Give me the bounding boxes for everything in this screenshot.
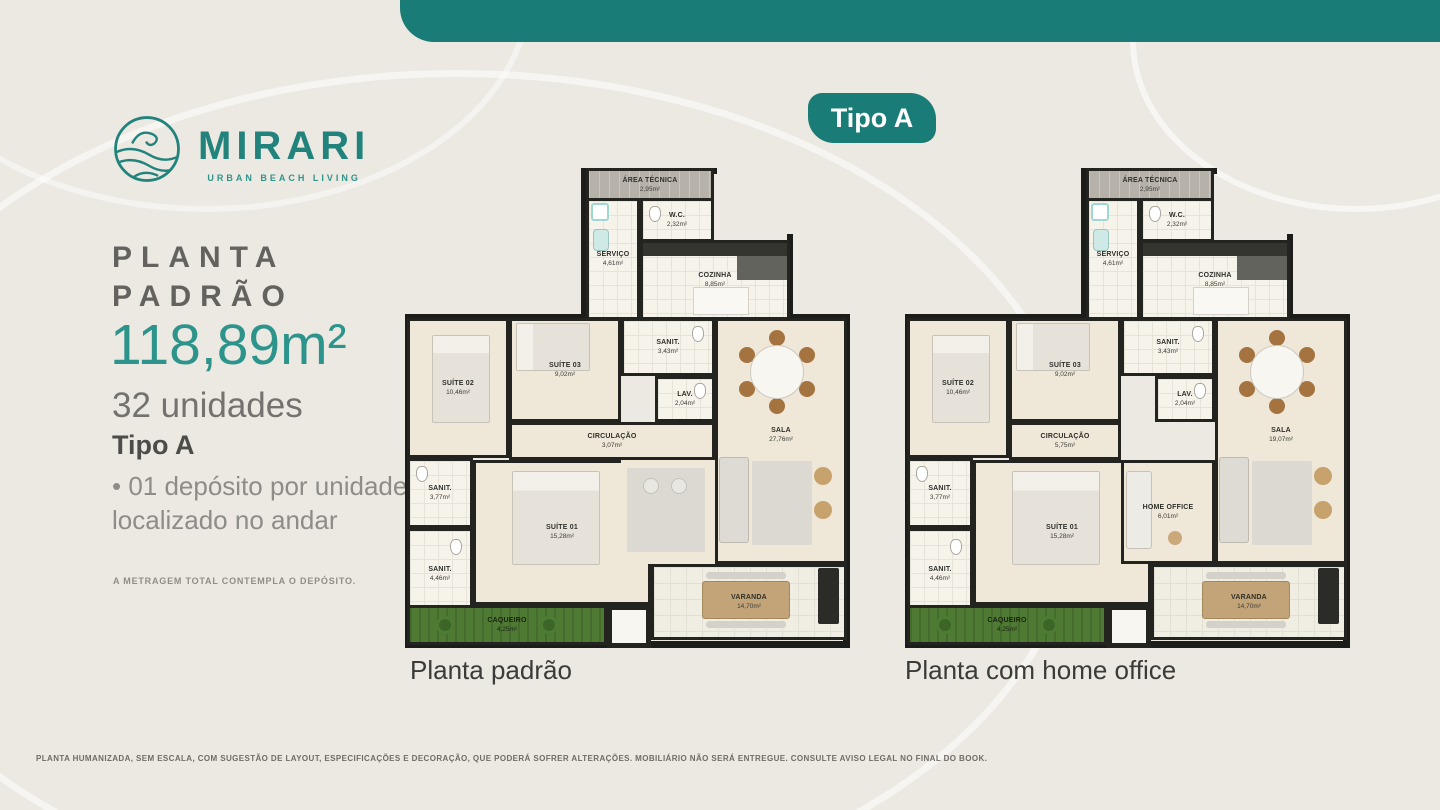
room-area: 9,02m² (1055, 371, 1075, 378)
toilet-icon (1194, 383, 1206, 399)
tank-icon (1093, 229, 1109, 251)
room-label: SUÍTE 01 (546, 524, 578, 532)
kitchen-counter-icon (1143, 243, 1287, 256)
tank-icon (593, 229, 609, 251)
armchair-icon (643, 478, 659, 494)
room-area: 14,70m² (1237, 603, 1261, 610)
units-count: 32 unidades (112, 386, 303, 426)
room-area: 9,02m² (555, 371, 575, 378)
room-area: 3,77m² (930, 494, 950, 501)
plant-icon (936, 616, 954, 634)
wave-sun-circle-icon (110, 112, 184, 186)
armchair-icon (1314, 501, 1332, 519)
room-label: W.C. (669, 212, 685, 220)
brand-name: MIRARI (198, 126, 370, 166)
room-area: 14,70m² (737, 603, 761, 610)
room-sala: SALA 19,07m² (1215, 318, 1347, 564)
room-servico: SERVIÇO 4,61m² (586, 198, 640, 320)
washer-icon (591, 203, 609, 221)
stool-icon (1168, 531, 1182, 545)
toilet-icon (694, 383, 706, 399)
floorplan-padrao: ÁREA TÉCNICA 2,95m² W.C. 2,32m² SERVIÇO … (405, 168, 850, 648)
room-area: 15,28m² (550, 533, 574, 540)
kitchen-cabinet-icon (1237, 256, 1287, 280)
room-label: COZINHA (698, 272, 731, 280)
room-caqueiro: CAQUEIRO 4,25m² (407, 605, 607, 645)
room-label: SERVIÇO (1097, 251, 1130, 259)
kitchen-island-icon (693, 287, 749, 315)
top-accent-bar (400, 0, 1440, 42)
rug-icon (1252, 461, 1312, 545)
room-label: SUÍTE 01 (1046, 524, 1078, 532)
toilet-icon (1149, 206, 1161, 222)
armchair-icon (671, 478, 687, 494)
washer-icon (1091, 203, 1109, 221)
room-label: CAQUEIRO (987, 617, 1026, 625)
room-area: 2,32m² (667, 221, 687, 228)
room-circulacao: CIRCULAÇÃO 3,07m² (509, 422, 715, 460)
varanda-chairs-icon (1206, 621, 1286, 628)
room-area: 4,61m² (603, 260, 623, 267)
armchair-icon (814, 501, 832, 519)
room-label: SUÍTE 03 (549, 362, 581, 370)
room-area-tecnica: ÁREA TÉCNICA 2,95m² (586, 168, 714, 202)
room-label: SANIT. (928, 485, 951, 493)
room-area: 4,46m² (930, 575, 950, 582)
room-area: 19,07m² (1269, 436, 1293, 443)
page: Tipo A MIRARI URBAN BEACH LIVING PLANTA … (0, 0, 1440, 810)
room-label: SERVIÇO (597, 251, 630, 259)
plant-icon (1040, 616, 1058, 634)
tipo-badge: Tipo A (808, 93, 936, 143)
kitchen-counter-icon (643, 243, 787, 256)
dining-table-icon (1250, 345, 1304, 399)
room-suite-02: SUÍTE 02 10,46m² (407, 318, 509, 458)
kitchen-island-icon (1193, 287, 1249, 315)
varanda-chairs-icon (706, 621, 786, 628)
room-label: LAV. (1177, 391, 1193, 399)
room-label: SANIT. (928, 566, 951, 574)
toilet-icon (649, 206, 661, 222)
room-area: 5,75m² (1055, 442, 1075, 449)
room-cozinha: COZINHA 8,85m² (1140, 240, 1290, 320)
room-sala: SALA 27,76m² (715, 318, 847, 564)
room-area: 8,85m² (705, 281, 725, 288)
room-suite-03: SUÍTE 03 9,02m² (509, 318, 621, 422)
room-area: 4,25m² (997, 626, 1017, 633)
deposito-note: • 01 depósito por unidade localizado no … (112, 470, 412, 538)
room-area-tecnica: ÁREA TÉCNICA 2,95m² (1086, 168, 1214, 202)
toilet-icon (1192, 326, 1204, 342)
room-label: SANIT. (1156, 339, 1179, 347)
room-wc: W.C. 2,32m² (640, 198, 714, 242)
room-suite-02: SUÍTE 02 10,46m² (907, 318, 1009, 458)
room-area: 15,28m² (1050, 533, 1074, 540)
room-suite-03: SUÍTE 03 9,02m² (1009, 318, 1121, 422)
room-varanda: VARANDA 14,70m² (651, 564, 847, 640)
room-cozinha: COZINHA 8,85m² (640, 240, 790, 320)
room-area: 3,43m² (658, 348, 678, 355)
room-caqueiro: CAQUEIRO 4,25m² (907, 605, 1107, 645)
brand-text: MIRARI URBAN BEACH LIVING (198, 112, 370, 183)
rug-icon (627, 468, 705, 552)
room-area: 3,77m² (430, 494, 450, 501)
room-area: 2,95m² (640, 186, 660, 193)
room-sanit-suites: SANIT. 3,43m² (1121, 318, 1215, 376)
room-area: 27,76m² (769, 436, 793, 443)
room-lav: LAV. 2,04m² (655, 376, 715, 422)
room-label: SANIT. (428, 566, 451, 574)
room-area: 2,95m² (1140, 186, 1160, 193)
room-label: SANIT. (656, 339, 679, 347)
unit-type-label: Tipo A (112, 430, 195, 461)
room-area: 2,32m² (1167, 221, 1187, 228)
caption-plan-home-office: Planta com home office (905, 655, 1176, 686)
armchair-icon (814, 467, 832, 485)
dining-table-icon (750, 345, 804, 399)
room-wc: W.C. 2,32m² (1140, 198, 1214, 242)
floorplan-home-office: ÁREA TÉCNICA 2,95m² W.C. 2,32m² SERVIÇO … (905, 168, 1350, 648)
toilet-icon (416, 466, 428, 482)
grill-icon (1318, 568, 1339, 624)
toilet-icon (916, 466, 928, 482)
room-lav: LAV. 2,04m² (1155, 376, 1215, 422)
room-label: CIRCULAÇÃO (1040, 433, 1089, 441)
room-label: VARANDA (731, 594, 767, 602)
room-sanit-social: SANIT. 3,77m² (407, 458, 473, 528)
plant-icon (436, 616, 454, 634)
grill-icon (818, 568, 839, 624)
bed-icon (1012, 471, 1100, 565)
toilet-icon (692, 326, 704, 342)
varanda-chairs-icon (706, 572, 786, 579)
room-servico: SERVIÇO 4,61m² (1086, 198, 1140, 320)
room-label: SUÍTE 03 (1049, 362, 1081, 370)
rug-icon (752, 461, 812, 545)
room-label: VARANDA (1231, 594, 1267, 602)
room-area: 8,85m² (1205, 281, 1225, 288)
room-label: HOME OFFICE (1143, 504, 1194, 512)
room-area: 6,01m² (1158, 513, 1178, 520)
metragem-note: A METRAGEM TOTAL CONTEMPLA O DEPÓSITO. (113, 576, 356, 586)
room-label: SUÍTE 02 (442, 380, 474, 388)
room-area: 4,25m² (497, 626, 517, 633)
room-label: SUÍTE 02 (942, 380, 974, 388)
room-sanit-suites: SANIT. 3,43m² (621, 318, 715, 376)
room-label: SANIT. (428, 485, 451, 493)
room-area: 10,46m² (446, 389, 470, 396)
room-area: 2,04m² (1175, 400, 1195, 407)
plant-icon (540, 616, 558, 634)
total-area-value: 118,89m² (110, 312, 347, 378)
toilet-icon (450, 539, 462, 555)
room-label: SALA (771, 427, 791, 435)
room-circulacao: CIRCULAÇÃO 5,75m² (1009, 422, 1121, 460)
room-label: ÁREA TÉCNICA (622, 177, 677, 185)
brand-logo: MIRARI URBAN BEACH LIVING (110, 112, 370, 186)
living-open-area (621, 460, 715, 564)
room-area: 4,46m² (430, 575, 450, 582)
footer-disclaimer: PLANTA HUMANIZADA, SEM ESCALA, COM SUGES… (36, 754, 987, 763)
room-area: 10,46m² (946, 389, 970, 396)
room-label: SALA (1271, 427, 1291, 435)
caption-plan-padrao: Planta padrão (410, 655, 572, 686)
room-label: CAQUEIRO (487, 617, 526, 625)
brand-tagline: URBAN BEACH LIVING (198, 173, 370, 183)
toilet-icon (950, 539, 962, 555)
shaft-box (1107, 605, 1151, 648)
bed-icon (512, 471, 600, 565)
room-label: ÁREA TÉCNICA (1122, 177, 1177, 185)
room-label: CIRCULAÇÃO (587, 433, 636, 441)
sofa-icon (719, 457, 749, 543)
room-home-office: HOME OFFICE 6,01m² (1121, 460, 1215, 564)
varanda-chairs-icon (1206, 572, 1286, 579)
room-varanda: VARANDA 14,70m² (1151, 564, 1347, 640)
page-title: PLANTA PADRÃO (112, 238, 362, 316)
room-label: LAV. (677, 391, 693, 399)
room-area: 4,61m² (1103, 260, 1123, 267)
room-area: 3,43m² (1158, 348, 1178, 355)
room-area: 2,04m² (675, 400, 695, 407)
room-area: 3,07m² (602, 442, 622, 449)
room-label: COZINHA (1198, 272, 1231, 280)
room-sanit-social: SANIT. 3,77m² (907, 458, 973, 528)
armchair-icon (1314, 467, 1332, 485)
tipo-badge-label: Tipo A (831, 103, 914, 134)
kitchen-cabinet-icon (737, 256, 787, 280)
sofa-icon (1219, 457, 1249, 543)
shaft-box (607, 605, 651, 648)
room-label: W.C. (1169, 212, 1185, 220)
